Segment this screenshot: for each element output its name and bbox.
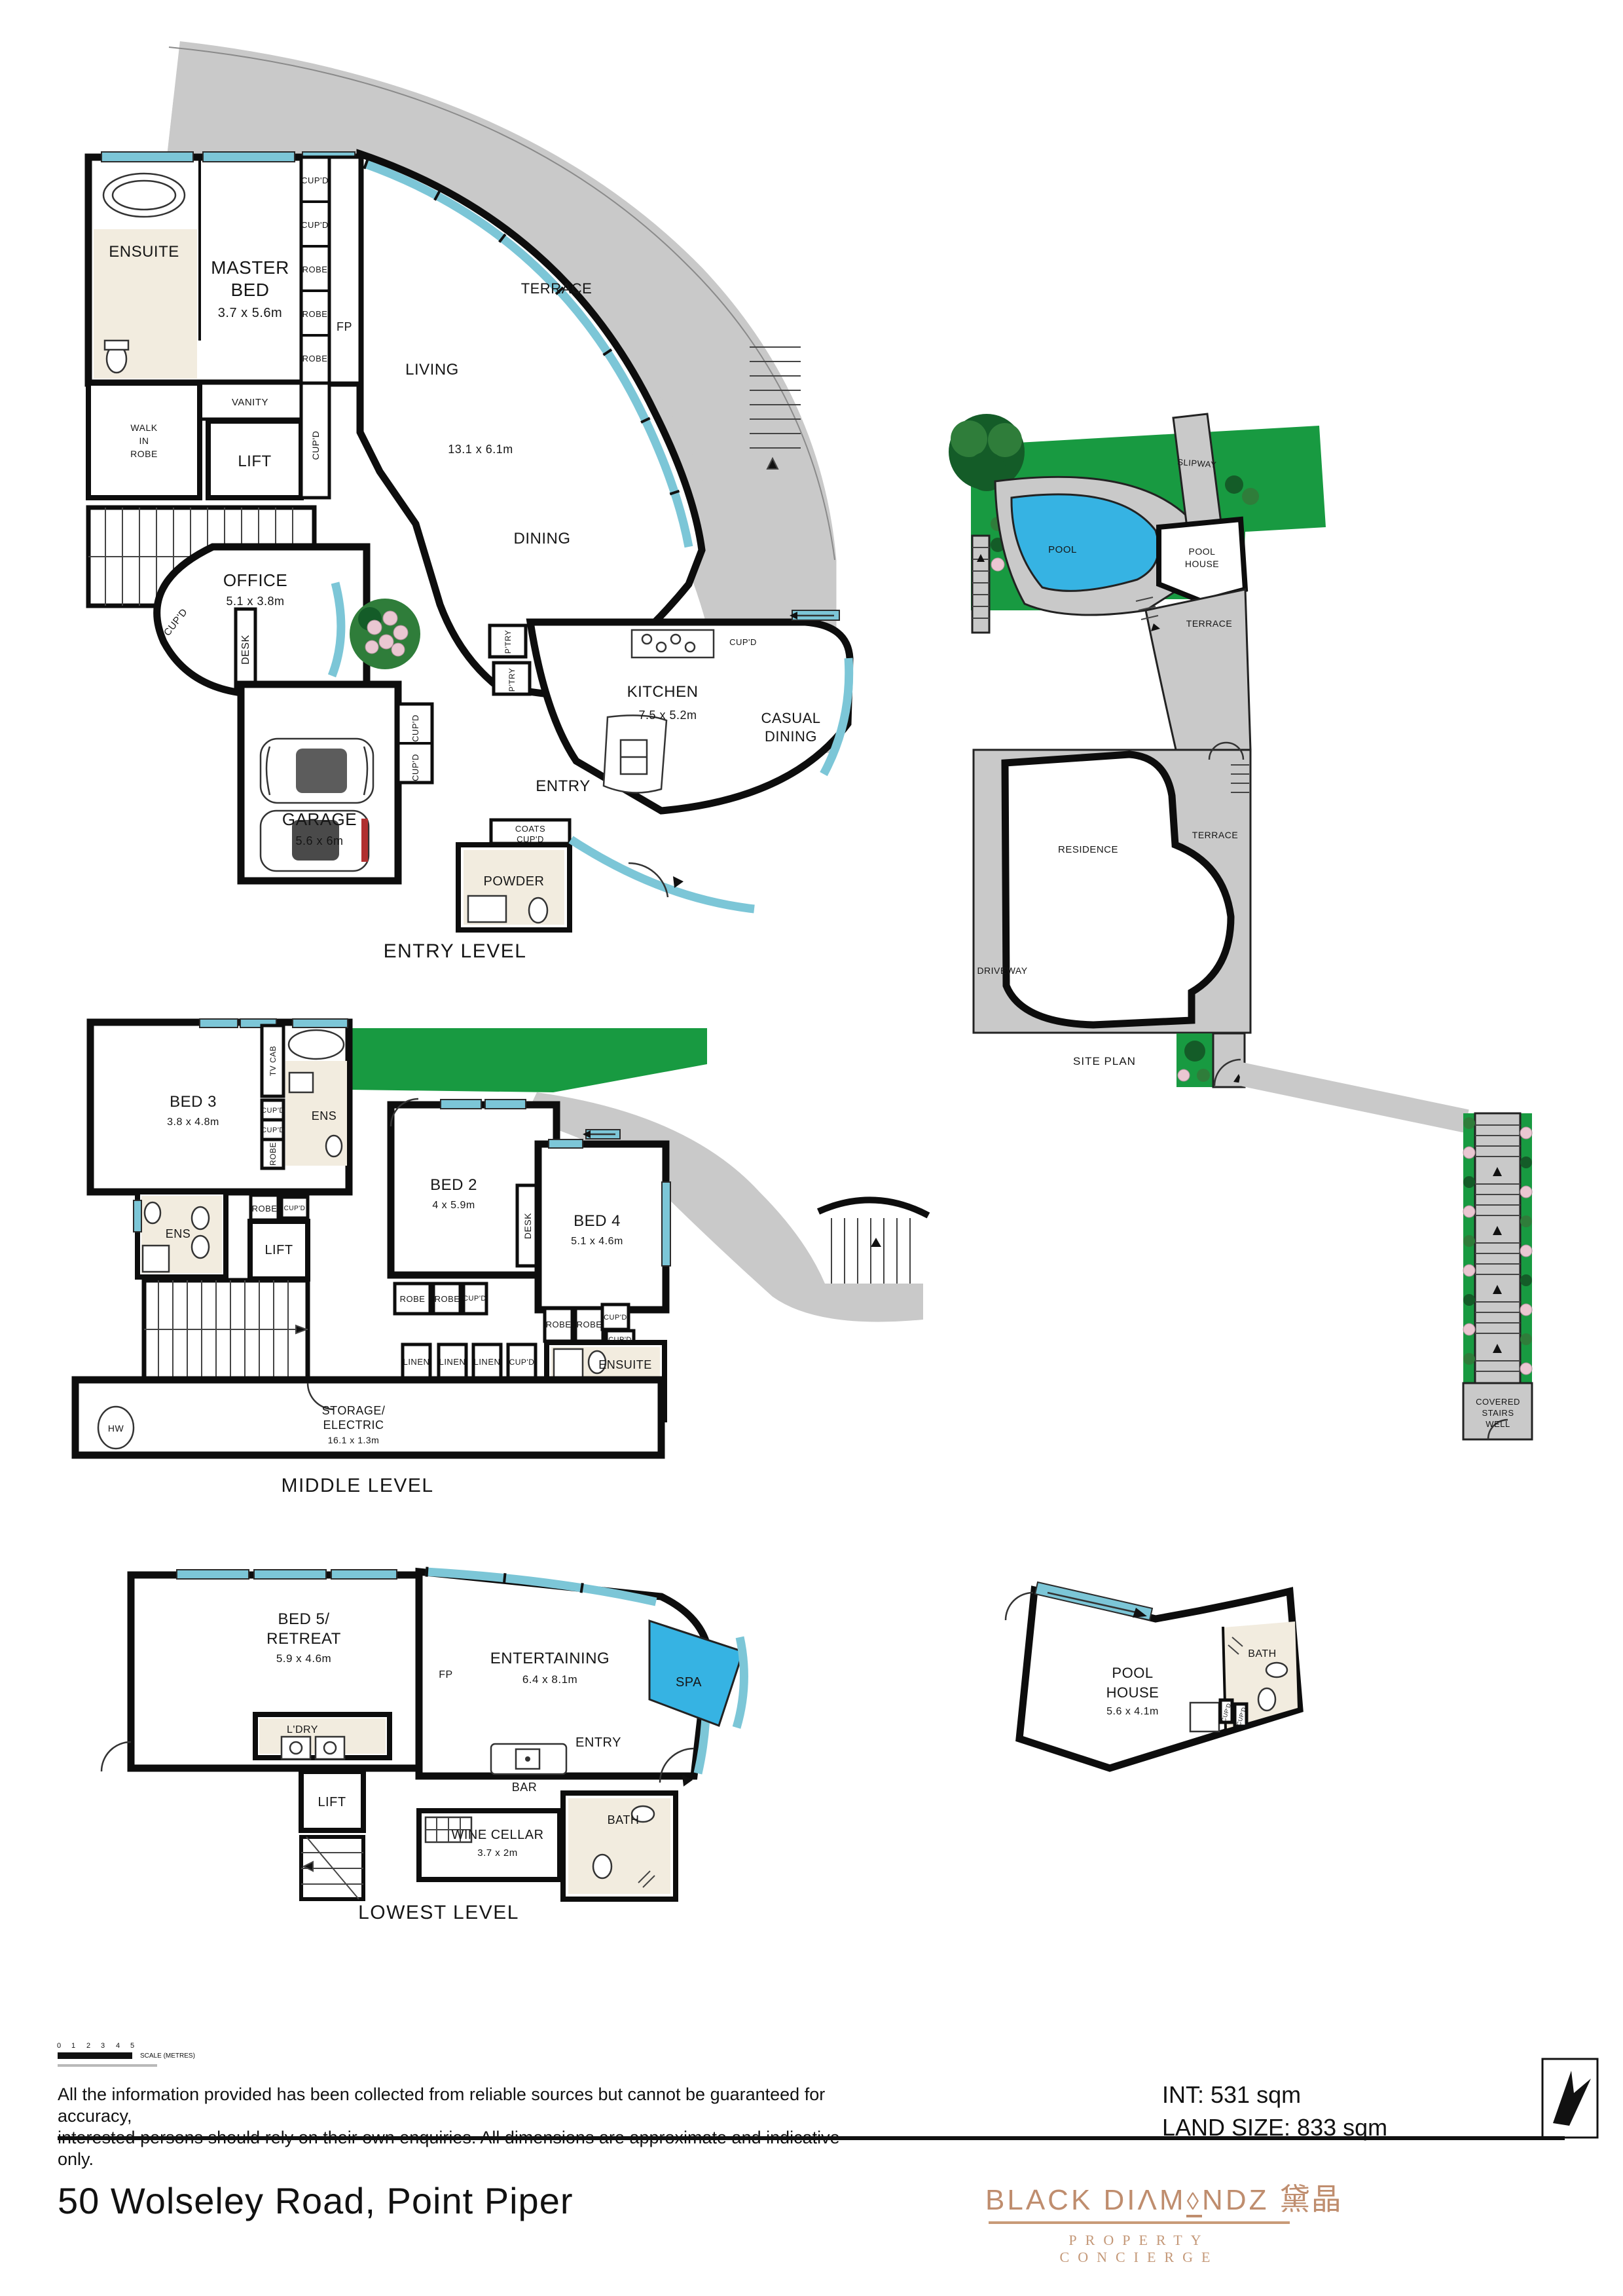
lowest-stairs (301, 1837, 363, 1899)
garden-path (1241, 1074, 1467, 1121)
residence-label: RESIDENCE (1058, 844, 1118, 855)
cupd-label: CUP'D (301, 176, 329, 185)
linen-label: LINEN (439, 1357, 466, 1367)
bath-label: BATH (1248, 1648, 1276, 1659)
scale-tick: 3 (101, 2042, 105, 2050)
bar-label: BAR (512, 1781, 538, 1794)
disclaimer: All the information provided has been co… (58, 2084, 843, 2170)
brand-logo: BLACK DIΛM◊NDZ 黛晶 PROPERTY CONCIERGE (985, 2176, 1293, 2266)
covered-stairs-strip (1463, 1113, 1532, 1439)
driveway-label: DRIVEWAY (977, 965, 1027, 976)
middle-stairs (144, 1280, 308, 1379)
hw-label: HW (108, 1423, 124, 1434)
entry-label: ENTRY (536, 777, 590, 795)
robe-label: ROBE (577, 1320, 602, 1329)
bed3-dims: 3.8 x 4.8m (167, 1117, 219, 1128)
pool-house-label: HOUSE (1185, 559, 1219, 569)
area-stats: INT: 531 sqm LAND SIZE: 833 sqm (1162, 2081, 1387, 2141)
covered-stairs-label: COVERED (1476, 1397, 1520, 1407)
scale-tick: 5 (130, 2042, 134, 2050)
robe-label: ROBE (268, 1142, 278, 1166)
dining-label: DINING (514, 530, 571, 547)
terrace-upper-label: TERRACE (1186, 618, 1232, 629)
brand-name-right: NDZ (1202, 2184, 1269, 2216)
garage-label: GARAGE (282, 809, 357, 829)
cupd-label: CUP'D (261, 1126, 285, 1134)
entry-level-title: ENTRY LEVEL (384, 940, 527, 962)
lift-label: LIFT (238, 453, 271, 470)
scale-bar: 0 1 2 3 4 5 SCALE (METRES) (58, 2042, 254, 2081)
coats-cupd-label: CUP'D (517, 834, 544, 844)
ensuite-label: ENSUITE (598, 1358, 652, 1371)
cupd-label: CUP'D (729, 637, 757, 647)
car-top (261, 739, 373, 803)
brand-tagline: PROPERTY CONCIERGE (985, 2232, 1293, 2266)
bed3-block (90, 1019, 349, 1192)
cupd-label: CUP'D (310, 431, 321, 460)
internal-area: INT: 531 sqm (1162, 2081, 1387, 2109)
pool-house-label: POOL (1112, 1665, 1153, 1681)
storage-label: STORAGE/ (322, 1404, 386, 1417)
north-compass-icon (1540, 2056, 1600, 2140)
cupd-label: CUP'D (608, 1336, 632, 1344)
cupd-label: CUP'D (604, 1314, 627, 1322)
bed3-label: BED 3 (170, 1093, 217, 1111)
living-dims: 13.1 x 6.1m (448, 443, 513, 456)
kitchen-island (604, 715, 666, 792)
casual-dining-label: DINING (765, 728, 817, 745)
ensuite-label: ENSUITE (109, 243, 179, 261)
bed4-dims: 5.1 x 4.6m (571, 1236, 623, 1247)
laundry-room (255, 1714, 390, 1759)
entertaining-label: ENTERTAINING (490, 1650, 610, 1667)
robe-label: ROBE (302, 354, 328, 363)
linen-label: LINEN (403, 1357, 430, 1367)
wine-cellar-room (419, 1811, 560, 1879)
vanity-label: VANITY (232, 397, 268, 408)
lowest-level-plan: BED 5/ RETREAT 5.9 x 4.6m FP ENTERTAININ… (85, 1559, 753, 1938)
entry-glazing (571, 840, 754, 909)
middle-level-plan: BED 3 3.8 x 4.8m TV CAB CUP'D CUP'D ROBE… (65, 1022, 943, 1532)
robe-label: ROBE (400, 1294, 426, 1304)
robe-label: ROBE (302, 309, 328, 319)
lift-label: LIFT (264, 1243, 293, 1257)
bed5-dims: 5.9 x 4.6m (276, 1652, 331, 1665)
site-plan: SLIPWAY POOL POOL HOUSE TERRACE RESIDENC… (943, 393, 1623, 1480)
entertaining-dims: 6.4 x 8.1m (522, 1673, 577, 1686)
cupd-label: CUP'D (463, 1295, 486, 1303)
kitchen-label: KITCHEN (627, 683, 699, 701)
pool-label: POOL (1048, 544, 1077, 555)
cupd-label: CUP'D (261, 1107, 285, 1115)
coats-cupd-label: COATS (515, 824, 545, 834)
wine-cellar-label: WINE CELLAR (451, 1828, 543, 1842)
lowest-level-title: LOWEST LEVEL (358, 1902, 519, 1923)
bed2-label: BED 2 (430, 1176, 477, 1194)
cupd-label: CUP'D (410, 754, 420, 781)
scale-tick: 4 (116, 2042, 120, 2050)
scale-caption: SCALE (METRES) (140, 2052, 195, 2060)
fp-label: FP (337, 320, 352, 333)
terrace-lower-label: TERRACE (1192, 830, 1238, 840)
robe-label: ROBE (302, 265, 328, 274)
upper-terrace (1136, 589, 1250, 761)
disclaimer-line: All the information provided has been co… (58, 2084, 843, 2127)
bed5-label: BED 5/ (278, 1610, 329, 1628)
walk-in-robe-label: ROBE (130, 449, 158, 459)
robe-label: ROBE (546, 1320, 572, 1329)
terrace-label: TERRACE (521, 280, 593, 297)
lift-label: LIFT (318, 1795, 346, 1809)
living-label: LIVING (405, 361, 459, 379)
ens-label: ENS (166, 1227, 191, 1240)
storage-dims: 16.1 x 1.3m (328, 1435, 380, 1445)
ptry-label: P'TRY (503, 630, 513, 654)
master-bed-label-2: BED (230, 280, 269, 300)
brand-diamond-icon: ◊ (1186, 2187, 1202, 2217)
scale-tick: 2 (86, 2042, 90, 2050)
office-label: OFFICE (223, 570, 287, 590)
brand-name: BLACK DIΛM◊NDZ 黛晶 (985, 2176, 1293, 2219)
robe-label: ROBE (435, 1294, 460, 1304)
covered-stairs-label: STAIRS (1482, 1408, 1514, 1418)
brand-chinese: 黛晶 (1280, 2182, 1343, 2216)
site-garden-patch (1176, 1033, 1245, 1087)
master-bed-dims: 3.7 x 5.6m (218, 306, 282, 320)
walk-in-robe-label: WALK (130, 422, 157, 433)
ptry-label: P'TRY (507, 668, 517, 692)
middle-level-title: MIDDLE LEVEL (281, 1475, 433, 1496)
storage-label: ELECTRIC (323, 1418, 384, 1432)
brand-name-left: BLACK DIΛM (985, 2184, 1186, 2216)
garage-room (241, 684, 432, 881)
desk-label: DESK (522, 1213, 533, 1239)
disclaimer-line: interested persons should rely on their … (58, 2127, 843, 2170)
property-address: 50 Wolseley Road, Point Piper (58, 2179, 574, 2222)
walk-in-robe-label: IN (139, 435, 149, 446)
master-bed-label-1: MASTER (211, 257, 289, 278)
covered-stairs-label: WELL (1486, 1419, 1510, 1429)
desk-label: DESK (240, 635, 251, 665)
pool-house-label: HOUSE (1106, 1684, 1159, 1701)
kitchen-dims: 7.5 x 5.2m (638, 709, 697, 722)
cupd-label: CUP'D (284, 1205, 306, 1212)
middle-lawn (349, 1028, 707, 1092)
scale-tick: 1 (71, 2042, 75, 2050)
powder-label: POWDER (484, 874, 545, 889)
cupd-label: CUP'D (410, 714, 420, 742)
robe-label: ROBE (252, 1204, 278, 1213)
bath-label: BATH (608, 1813, 640, 1826)
linen-label: LINEN (474, 1357, 501, 1367)
bed4-label: BED 4 (574, 1212, 621, 1230)
spa-label: SPA (676, 1675, 702, 1690)
bar-island (491, 1744, 566, 1774)
pool-house-dims: 5.6 x 4.1m (1106, 1706, 1159, 1717)
entry-label: ENTRY (575, 1735, 621, 1750)
fp-label: FP (439, 1669, 452, 1680)
casual-dining-label: CASUAL (761, 710, 820, 726)
bed2-dims: 4 x 5.9m (432, 1200, 475, 1211)
scale-tick: 0 (57, 2042, 61, 2050)
floorplan-page: { "labels": { "cupd": "CUP'D", "robe": "… (0, 0, 1623, 2296)
pool-house-label: POOL (1189, 546, 1216, 557)
bed5-label: RETREAT (266, 1630, 341, 1648)
flower-bush (350, 599, 420, 669)
ens-label: ENS (312, 1109, 337, 1122)
pool-house-plan: POOL HOUSE 5.6 x 4.1m BATH CUP'D CUP'D (1002, 1572, 1329, 1794)
tv-cab-label: TV CAB (268, 1046, 278, 1076)
garage-dims: 5.6 x 6m (295, 834, 343, 847)
laundry-label: L'DRY (287, 1724, 318, 1735)
brand-underline (989, 2221, 1290, 2224)
office-dims: 5.1 x 3.8m (226, 595, 284, 608)
site-plan-title: SITE PLAN (1073, 1055, 1136, 1067)
cupd-label: CUP'D (301, 220, 329, 230)
footer-divider (58, 2136, 1565, 2140)
entry-level-plan: ENSUITE MASTER BED 3.7 x 5.6m CUP'D CUP'… (39, 65, 903, 982)
wine-cellar-dims: 3.7 x 2m (477, 1847, 518, 1859)
lowest-bath (563, 1793, 676, 1899)
cupd-label: CUP'D (509, 1358, 535, 1367)
